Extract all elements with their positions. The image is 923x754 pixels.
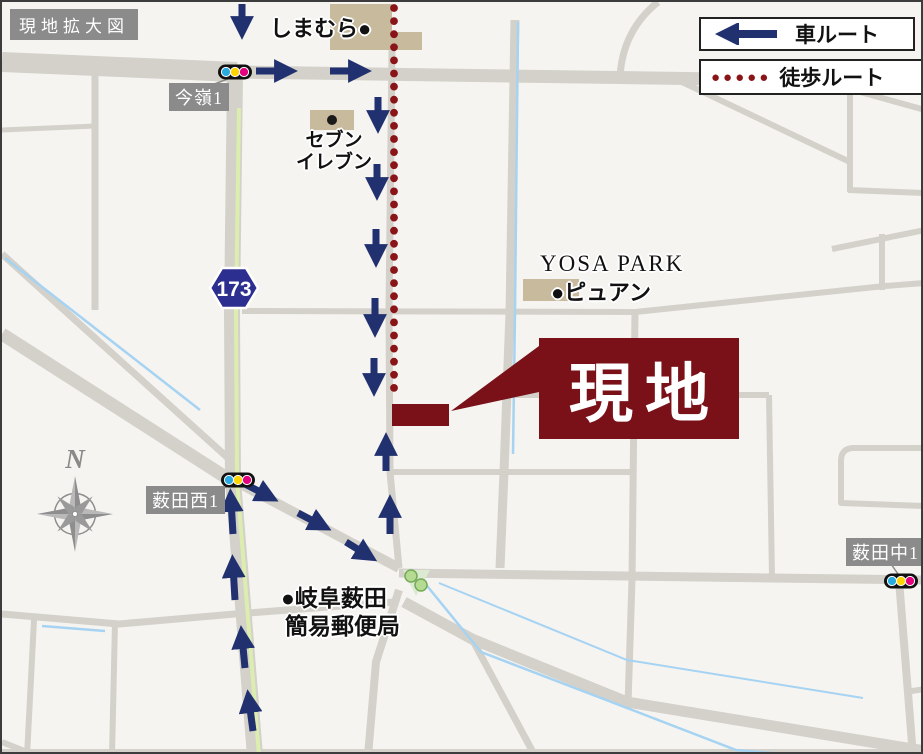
intersection-label-imamine1: 今嶺1 <box>169 83 229 111</box>
legend-walk-route-label: 徒歩ルート <box>779 62 884 92</box>
walk-route-dots-icon: ●●●●● <box>711 69 771 86</box>
traffic-light-icon <box>218 65 252 80</box>
poi-label-post-office: ●岐阜薮田 簡易郵便局 <box>281 585 400 640</box>
seven-eleven-dot <box>327 115 337 125</box>
intersection-label-yabuta-naka1: 薮田中1 <box>846 538 923 566</box>
intersection-label-yabuta-nishi1: 薮田西1 <box>146 486 225 514</box>
traffic-light-icon <box>884 574 918 589</box>
site-marker <box>392 346 539 426</box>
poi-label-shimamura: しまむら● <box>270 11 371 43</box>
poi-label-seven-eleven: セブン イレブン <box>296 130 372 174</box>
park-trees-icon <box>403 570 430 596</box>
route-173-shield-icon: 173 <box>210 268 258 308</box>
svg-text:173: 173 <box>216 278 251 301</box>
map-frame: 173 <box>0 0 923 754</box>
legend-car-route: 車ルート <box>699 17 915 51</box>
legend-car-route-label: 車ルート <box>795 19 879 49</box>
map-title: 現地拡大図 <box>10 9 138 40</box>
traffic-light-icon <box>221 473 255 488</box>
car-route-arrow-icon <box>709 23 781 45</box>
legend-walk-route: ●●●●● 徒歩ルート <box>699 59 923 95</box>
compass-north-label: N <box>54 444 96 475</box>
poi-label-pyuan: ●ピュアン <box>551 275 651 307</box>
map-canvas: 173 <box>2 2 923 754</box>
site-label: 現地 <box>539 338 739 439</box>
road-network <box>2 2 923 754</box>
compass-icon <box>37 476 113 552</box>
poi-label-yosa-park: YOSA PARK <box>540 251 684 277</box>
